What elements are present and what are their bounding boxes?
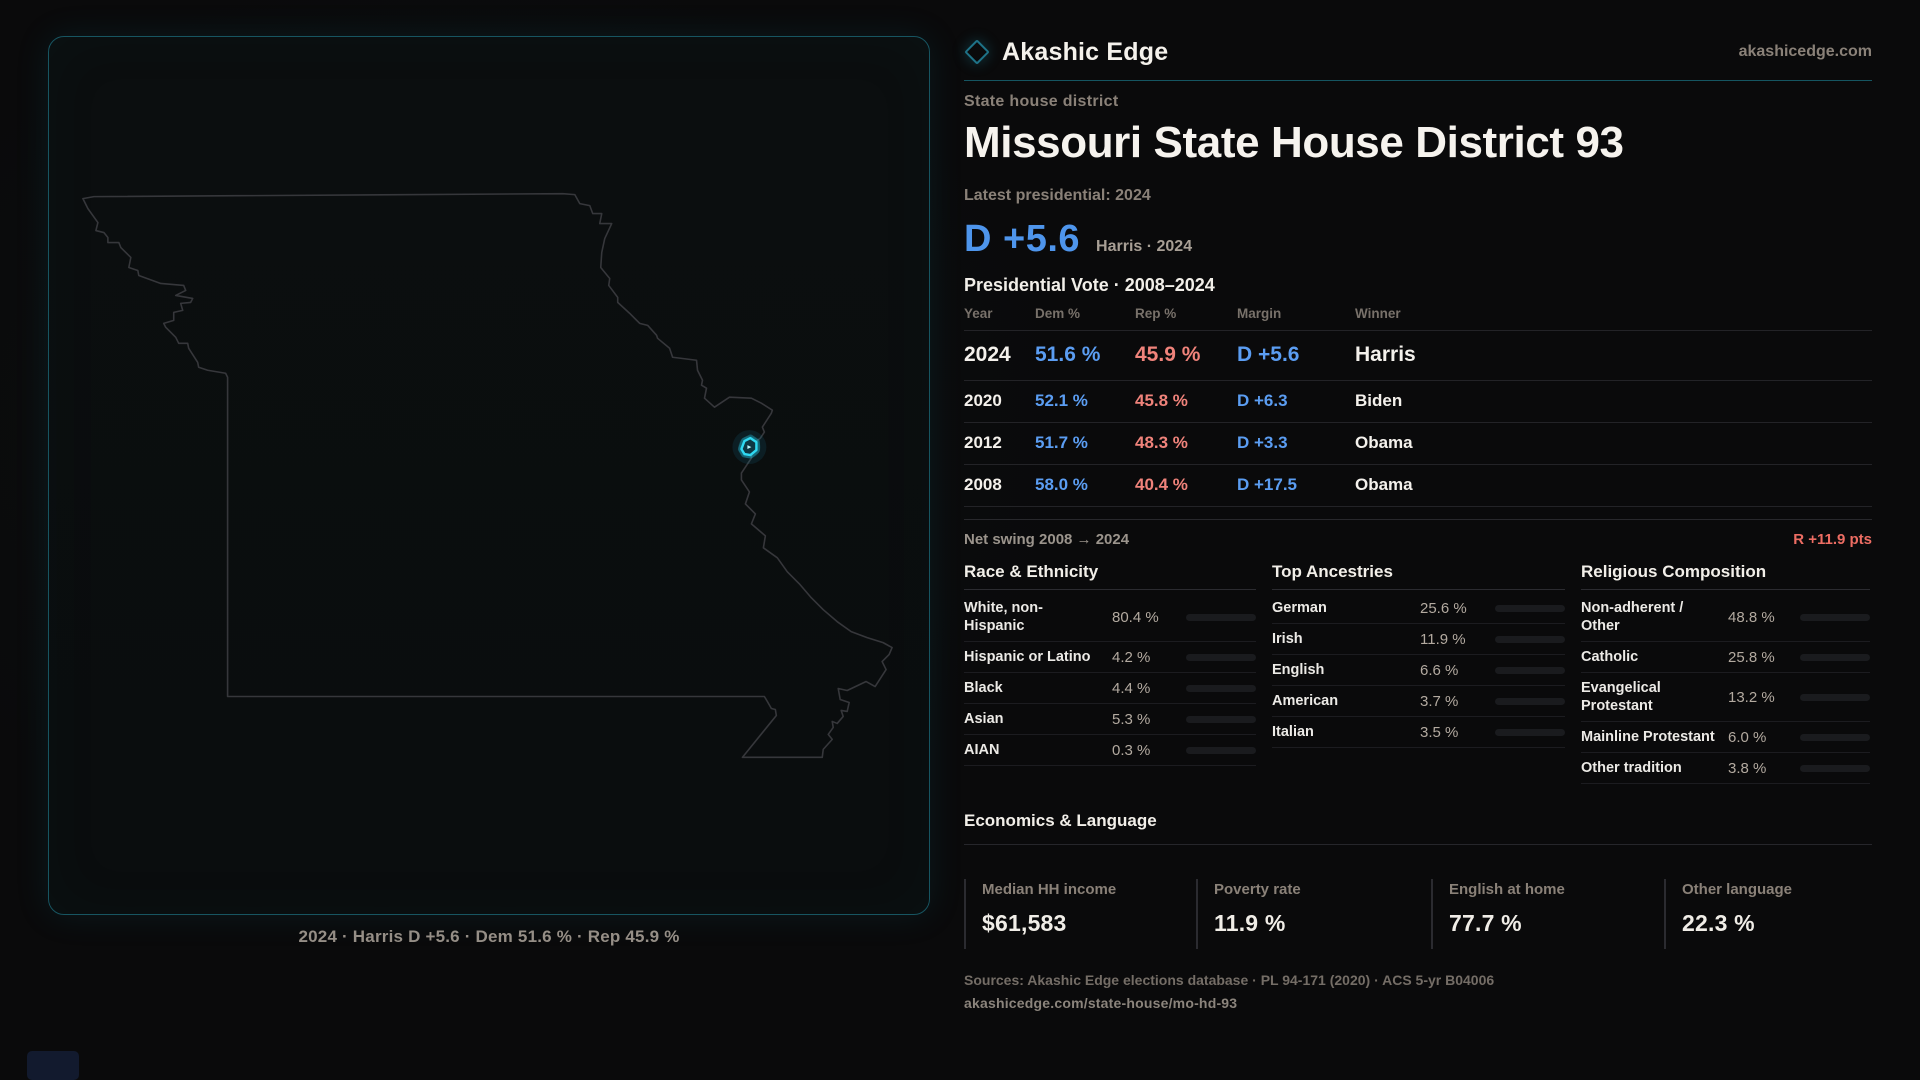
demo-label: Asian [964, 710, 1098, 728]
demo-bar-track [1186, 685, 1256, 692]
demo-label: Non-adherent / Other [1581, 599, 1721, 635]
demo-row: American 3.7 % [1272, 686, 1565, 717]
latest-label: Latest presidential: 2024 [964, 187, 1872, 205]
table-row: 2020 52.1 % 45.8 % D +6.3 Biden [964, 381, 1872, 423]
demo-label: Evangelical Protestant [1581, 679, 1721, 715]
footer: Sources: Akashic Edge elections database… [964, 972, 1872, 1013]
bottom-left-artifact [27, 1051, 79, 1080]
stat-value: 11.9 % [1214, 910, 1431, 937]
presidential-table: Year Dem % Rep % Margin Winner 2024 51.6… [964, 306, 1872, 507]
demo-value: 3.8 % [1728, 760, 1800, 777]
table-row: 2012 51.7 % 48.3 % D +3.3 Obama [964, 423, 1872, 465]
demo-value: 6.0 % [1728, 729, 1800, 746]
cell-year: 2024 [964, 343, 1035, 367]
table-body: 2024 51.6 % 45.9 % D +5.6 Harris 2020 52… [964, 331, 1872, 507]
demo-row: Hispanic or Latino 4.2 % [964, 642, 1256, 673]
economics-divider [964, 844, 1872, 845]
economics-title: Economics & Language [964, 811, 1872, 831]
demo-row: Catholic 25.8 % [1581, 642, 1870, 673]
cell-year: 2008 [964, 475, 1035, 495]
demo-label: Black [964, 679, 1098, 697]
demo-bar-track [1800, 765, 1870, 772]
demo-label: American [1272, 692, 1410, 710]
demo-bar-track [1495, 667, 1565, 674]
cell-margin: D +6.3 [1237, 391, 1355, 411]
ancestries-section: Top Ancestries German 25.6 % Irish 11.9 … [1272, 562, 1565, 784]
demo-label: White, non-Hispanic [964, 599, 1098, 635]
demo-value: 25.6 % [1420, 600, 1493, 617]
demo-value: 6.6 % [1420, 662, 1493, 679]
demo-bar-track [1186, 654, 1256, 661]
diamond-icon [964, 39, 989, 64]
demo-label: Catholic [1581, 648, 1721, 666]
stat-value: 22.3 % [1682, 910, 1872, 937]
demographics-grid: Race & Ethnicity White, non-Hispanic 80.… [964, 562, 1872, 784]
headline-margin-row: D +5.6 Harris · 2024 [964, 217, 1872, 261]
cell-year: 2012 [964, 433, 1035, 453]
demo-label: AIAN [964, 741, 1098, 759]
cell-margin: D +3.3 [1237, 433, 1355, 453]
demo-row: White, non-Hispanic 80.4 % [964, 593, 1256, 642]
stat-value: 77.7 % [1449, 910, 1664, 937]
demo-label: Other tradition [1581, 759, 1721, 777]
demo-label: German [1272, 599, 1410, 617]
cell-rep-pct: 40.4 % [1135, 475, 1237, 495]
footer-permalink[interactable]: akashicedge.com/state-house/mo-hd-93 [964, 995, 1237, 1011]
cell-rep-pct: 45.8 % [1135, 391, 1237, 411]
religion-list: Non-adherent / Other 48.8 % Catholic 25.… [1581, 593, 1870, 784]
demo-label: English [1272, 661, 1410, 679]
race-list: White, non-Hispanic 80.4 % Hispanic or L… [964, 593, 1256, 766]
demo-bar-track [1495, 605, 1565, 612]
missouri-outline [83, 194, 892, 758]
demo-row: Other tradition 3.8 % [1581, 753, 1870, 784]
stats-column: Akashic Edge akashicedge.com State house… [964, 0, 1872, 1013]
table-row: 2008 58.0 % 40.4 % D +17.5 Obama [964, 465, 1872, 507]
demo-bar-track [1800, 614, 1870, 621]
stat-label: English at home [1449, 881, 1664, 898]
cell-year: 2020 [964, 391, 1035, 411]
demo-value: 4.4 % [1112, 680, 1185, 697]
demo-row: Italian 3.5 % [1272, 717, 1565, 748]
demo-value: 25.8 % [1728, 649, 1800, 666]
stat-cell: Other language 22.3 % [1664, 879, 1872, 949]
headline-context: Harris · 2024 [1096, 238, 1192, 256]
col-margin: Margin [1237, 306, 1355, 321]
demo-bar-track [1800, 654, 1870, 661]
col-year: Year [964, 306, 1035, 321]
table-row: 2024 51.6 % 45.9 % D +5.6 Harris [964, 331, 1872, 381]
economics-stats: Median HH income $61,583 Poverty rate 11… [964, 879, 1872, 949]
stat-cell: Poverty rate 11.9 % [1196, 879, 1431, 949]
cell-margin: D +5.6 [1237, 343, 1355, 367]
demo-value: 48.8 % [1728, 609, 1800, 626]
website-link[interactable]: akashicedge.com [1739, 43, 1872, 61]
demo-bar-track [1186, 614, 1256, 621]
stat-label: Poverty rate [1214, 881, 1431, 898]
table-header-row: Year Dem % Rep % Margin Winner [964, 306, 1872, 331]
header-divider [964, 80, 1872, 81]
religion-section: Religious Composition Non-adherent / Oth… [1581, 562, 1870, 784]
demo-bar-track [1495, 698, 1565, 705]
demo-value: 5.3 % [1112, 711, 1185, 728]
demo-bar-track [1186, 747, 1256, 754]
demo-row: Asian 5.3 % [964, 704, 1256, 735]
demo-value: 3.7 % [1420, 693, 1493, 710]
demo-value: 80.4 % [1112, 609, 1185, 626]
cell-winner: Biden [1355, 391, 1872, 411]
economics-section: Economics & Language Median HH income $6… [964, 811, 1872, 949]
stat-cell: English at home 77.7 % [1431, 879, 1664, 949]
demo-label: Italian [1272, 723, 1410, 741]
net-swing-row: Net swing 2008 → 2024 R +11.9 pts [964, 519, 1872, 548]
demo-value: 13.2 % [1728, 689, 1800, 706]
col-rep: Rep % [1135, 306, 1237, 321]
cell-winner: Obama [1355, 433, 1872, 453]
demo-bar-track [1800, 734, 1870, 741]
ancestries-list: German 25.6 % Irish 11.9 % English 6.6 % [1272, 593, 1565, 748]
demo-value: 4.2 % [1112, 649, 1185, 666]
table-title: Presidential Vote · 2008–2024 [964, 275, 1872, 296]
demo-row: Non-adherent / Other 48.8 % [1581, 593, 1870, 642]
net-swing-label: Net swing 2008 → 2024 [964, 531, 1129, 548]
stat-value: $61,583 [982, 910, 1196, 937]
demo-value: 11.9 % [1420, 631, 1493, 648]
app-root: 2024 · Harris D +5.6 · Dem 51.6 % · Rep … [0, 0, 1920, 1080]
headline-margin-value: D +5.6 [964, 217, 1080, 261]
cell-winner: Harris [1355, 343, 1872, 367]
demo-bar-track [1495, 636, 1565, 643]
cell-dem-pct: 51.7 % [1035, 433, 1135, 453]
religion-title: Religious Composition [1581, 562, 1870, 590]
demo-row: Mainline Protestant 6.0 % [1581, 722, 1870, 753]
ancestries-title: Top Ancestries [1272, 562, 1565, 590]
cell-dem-pct: 52.1 % [1035, 391, 1135, 411]
demo-value: 3.5 % [1420, 724, 1493, 741]
demo-row: Irish 11.9 % [1272, 624, 1565, 655]
col-dem: Dem % [1035, 306, 1135, 321]
demo-value: 0.3 % [1112, 742, 1185, 759]
demo-row: English 6.6 % [1272, 655, 1565, 686]
brand-name: Akashic Edge [1002, 38, 1168, 67]
kicker: State house district [964, 93, 1872, 111]
header-bar: Akashic Edge akashicedge.com [964, 34, 1872, 70]
brand: Akashic Edge [964, 38, 1168, 67]
demo-bar-track [1800, 694, 1870, 701]
col-winner: Winner [1355, 306, 1872, 321]
map-panel [48, 36, 930, 915]
race-ethnicity-section: Race & Ethnicity White, non-Hispanic 80.… [964, 562, 1256, 784]
missouri-map [49, 37, 929, 914]
cell-rep-pct: 45.9 % [1135, 343, 1237, 367]
stat-label: Other language [1682, 881, 1872, 898]
demo-bar-track [1186, 716, 1256, 723]
demo-row: German 25.6 % [1272, 593, 1565, 624]
page-title: Missouri State House District 93 [964, 117, 1872, 169]
footer-sources: Sources: Akashic Edge elections database… [964, 972, 1872, 988]
cell-margin: D +17.5 [1237, 475, 1355, 495]
map-caption: 2024 · Harris D +5.6 · Dem 51.6 % · Rep … [48, 927, 930, 947]
cell-rep-pct: 48.3 % [1135, 433, 1237, 453]
demo-row: AIAN 0.3 % [964, 735, 1256, 766]
stat-label: Median HH income [982, 881, 1196, 898]
cell-winner: Obama [1355, 475, 1872, 495]
net-swing-value: R +11.9 pts [1793, 531, 1872, 548]
demo-label: Irish [1272, 630, 1410, 648]
demo-label: Mainline Protestant [1581, 728, 1721, 746]
demo-bar-track [1495, 729, 1565, 736]
race-title: Race & Ethnicity [964, 562, 1256, 590]
cell-dem-pct: 58.0 % [1035, 475, 1135, 495]
district-93-marker[interactable] [732, 430, 766, 464]
stat-cell: Median HH income $61,583 [964, 879, 1196, 949]
demo-row: Black 4.4 % [964, 673, 1256, 704]
cell-dem-pct: 51.6 % [1035, 343, 1135, 367]
demo-label: Hispanic or Latino [964, 648, 1098, 666]
demo-row: Evangelical Protestant 13.2 % [1581, 673, 1870, 722]
